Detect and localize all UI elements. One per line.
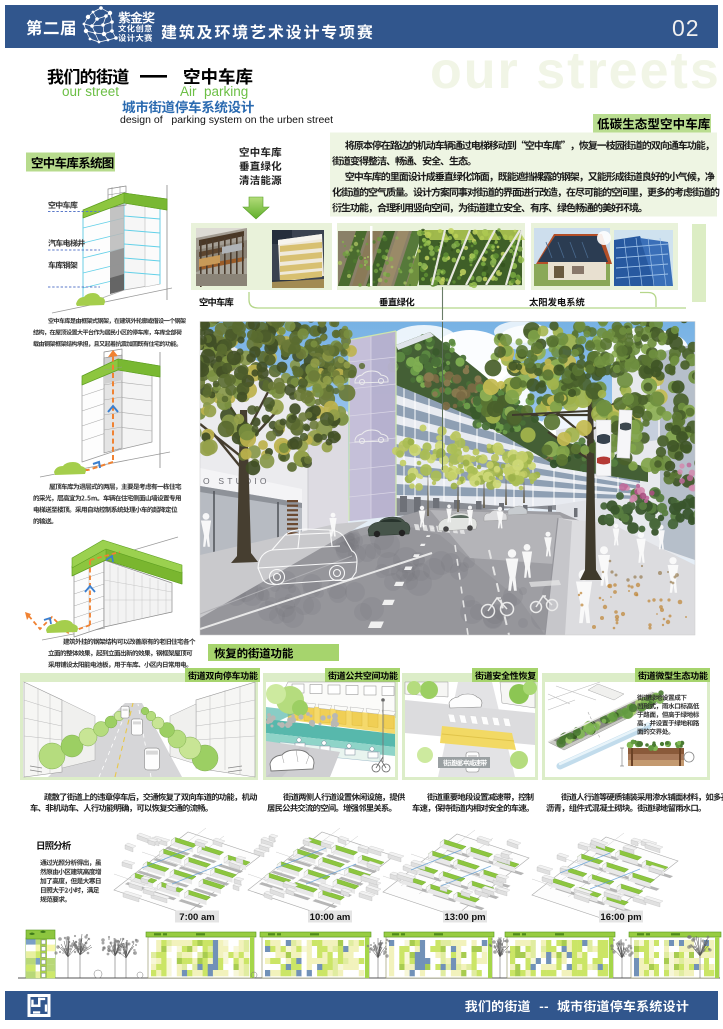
svg-text:02: 02	[672, 15, 700, 41]
svg-text:16:00 pm: 16:00 pm	[600, 912, 641, 923]
svg-text:7:00 am: 7:00 am	[179, 912, 214, 923]
svg-text:13:00 pm: 13:00 pm	[444, 912, 485, 923]
svg-text:Air parking: Air parking	[180, 84, 248, 99]
svg-text:design of parking system on: design of parking system on the urben st…	[120, 114, 333, 126]
svg-text:10:00 am: 10:00 am	[310, 912, 351, 923]
svg-text:our street: our street	[62, 84, 119, 99]
svg-text:our streets: our streets	[430, 42, 721, 100]
svg-text:O STUDIO: O STUDIO	[203, 476, 270, 486]
